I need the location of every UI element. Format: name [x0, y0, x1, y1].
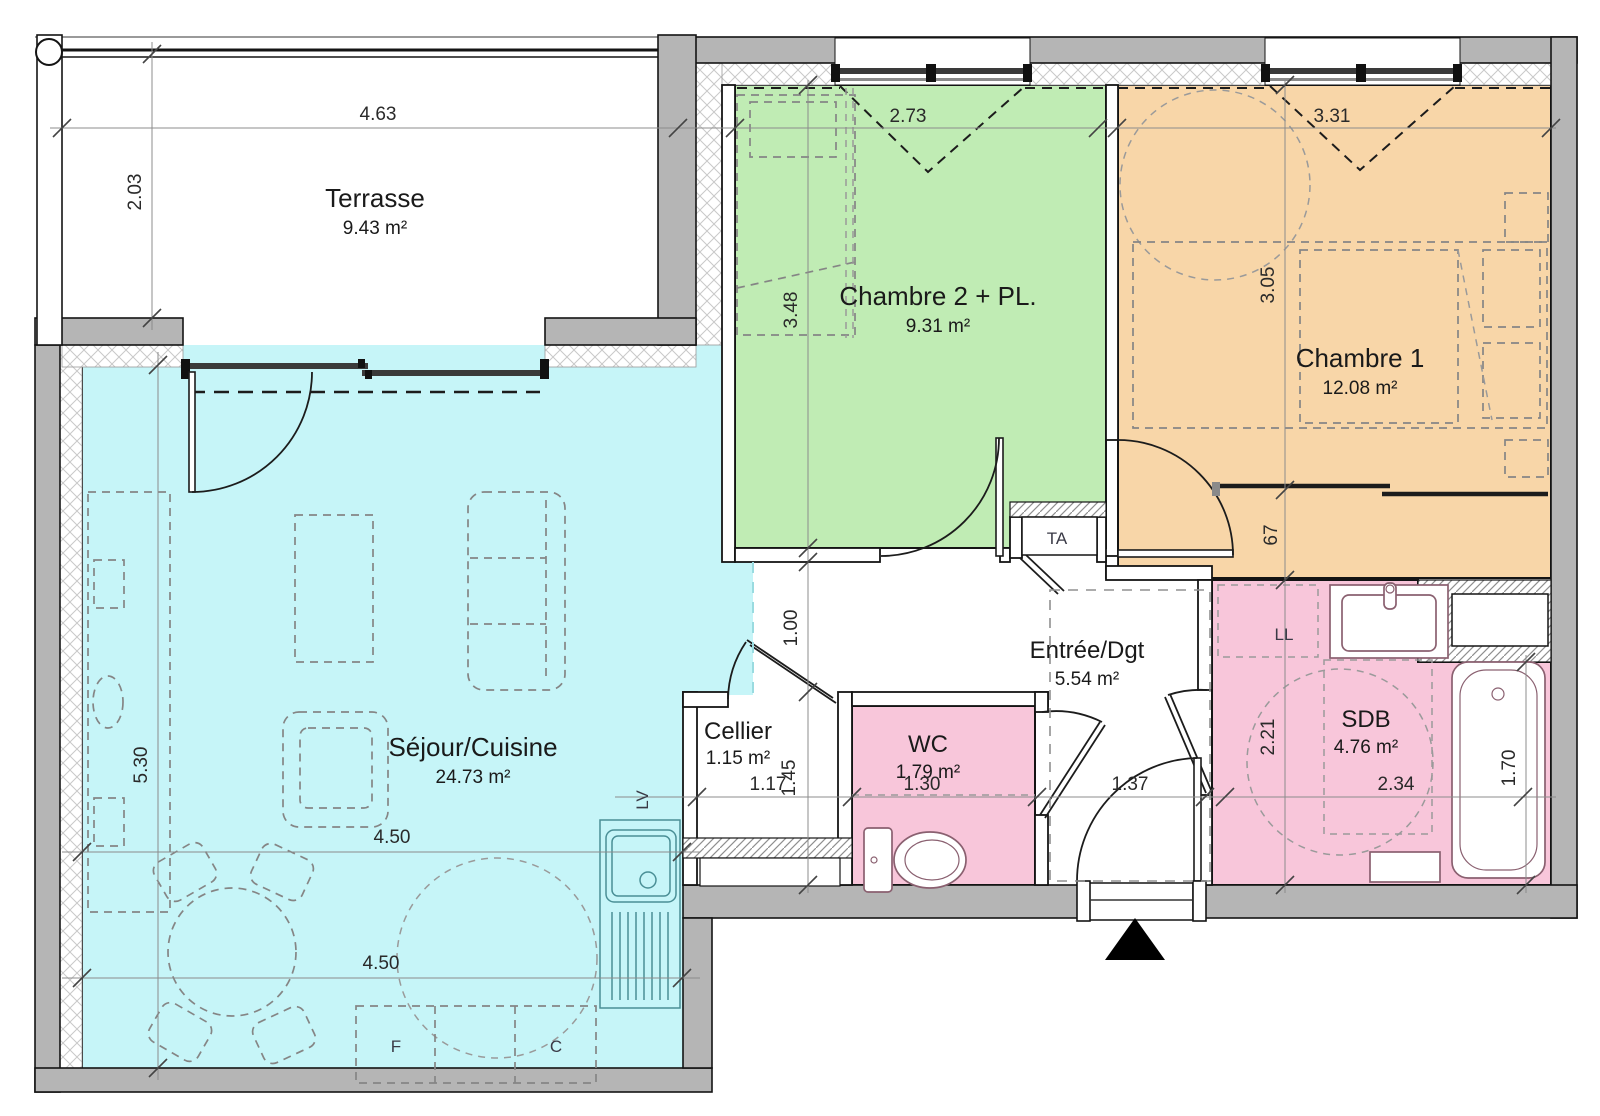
dim-sejour-width-mid: 4.50 [374, 827, 411, 848]
wall-terrace-bottom-right [545, 318, 696, 345]
dim-chambre1-width: 3.31 [1314, 106, 1351, 127]
dim-sejour-height: 5.30 [131, 747, 152, 784]
dim-bath-length: 1.70 [1499, 750, 1520, 787]
room-chambre2-label: Chambre 2 + PL. [839, 281, 1036, 311]
room-chambre1 [1118, 85, 1551, 578]
dim-wc-width: 1.30 [904, 774, 941, 795]
room-sdb-area: 4.76 m² [1334, 737, 1398, 758]
wall-terrace-right [658, 35, 696, 345]
lv-label: LV [633, 790, 652, 810]
room-chambre2-area: 9.31 m² [906, 316, 970, 337]
room-terrasse-label: Terrasse [325, 183, 425, 213]
room-sdb-label: SDB [1341, 706, 1390, 733]
dim-chambre2-width: 2.73 [890, 106, 927, 127]
column-icon [36, 39, 62, 65]
dim-cellier-width: 1.17 [750, 774, 787, 795]
bath-mat-icon [1370, 852, 1440, 882]
room-entree-area: 5.54 m² [1055, 669, 1119, 690]
dim-chambre1-height: 3.05 [1258, 267, 1279, 304]
room-sejour-label: Séjour/Cuisine [388, 732, 557, 762]
room-wc-label: WC [908, 731, 948, 758]
dim-entry-width: 1.37 [1112, 774, 1149, 795]
room-cellier-area: 1.15 m² [706, 748, 770, 769]
room-chambre1-label: Chambre 1 [1296, 343, 1425, 373]
dim-sdb-width: 2.34 [1378, 774, 1415, 795]
dim-sdb-height: 2.21 [1258, 719, 1279, 756]
dim-sejour-width-low: 4.50 [363, 953, 400, 974]
room-entree-label: Entrée/Dgt [1030, 637, 1145, 664]
cellier-hatch [683, 838, 852, 858]
dim-hall-width: 1.00 [781, 610, 802, 647]
fridge-label: F [391, 1037, 401, 1056]
wall-left [35, 345, 60, 1092]
ll-label: LL [1275, 625, 1294, 644]
dim-chambre2-height: 3.48 [781, 292, 802, 329]
shaft-box [1452, 594, 1548, 646]
room-chambre1-area: 12.08 m² [1323, 378, 1398, 399]
ta-label: TA [1047, 529, 1068, 548]
room-terrasse-area: 9.43 m² [343, 218, 407, 239]
room-cellier-label: Cellier [704, 718, 772, 745]
wall-bottom-left [35, 1068, 712, 1092]
wall-right [1551, 37, 1577, 918]
entree-zone-outline [1050, 590, 1210, 881]
dim-terrace-depth: 2.03 [125, 174, 146, 211]
terrace-side-wall [37, 35, 62, 345]
room-sejour-area: 24.73 m² [436, 767, 511, 788]
washbasin-icon [1330, 583, 1448, 658]
cellier-recess [700, 858, 840, 886]
entrance-arrow-icon [1105, 918, 1165, 960]
floor-plan-canvas: Terrasse 9.43 m² Séjour/Cuisine 24.73 m²… [0, 0, 1600, 1116]
dim-terrace-width: 4.63 [360, 104, 397, 125]
cooker-label: C [550, 1037, 562, 1056]
dim-wardrobe-depth: 67 [1261, 524, 1282, 545]
door-sdb [1165, 690, 1211, 793]
floor-plan: Terrasse 9.43 m² Séjour/Cuisine 24.73 m²… [0, 0, 1600, 1116]
wall-connector [683, 918, 712, 1068]
